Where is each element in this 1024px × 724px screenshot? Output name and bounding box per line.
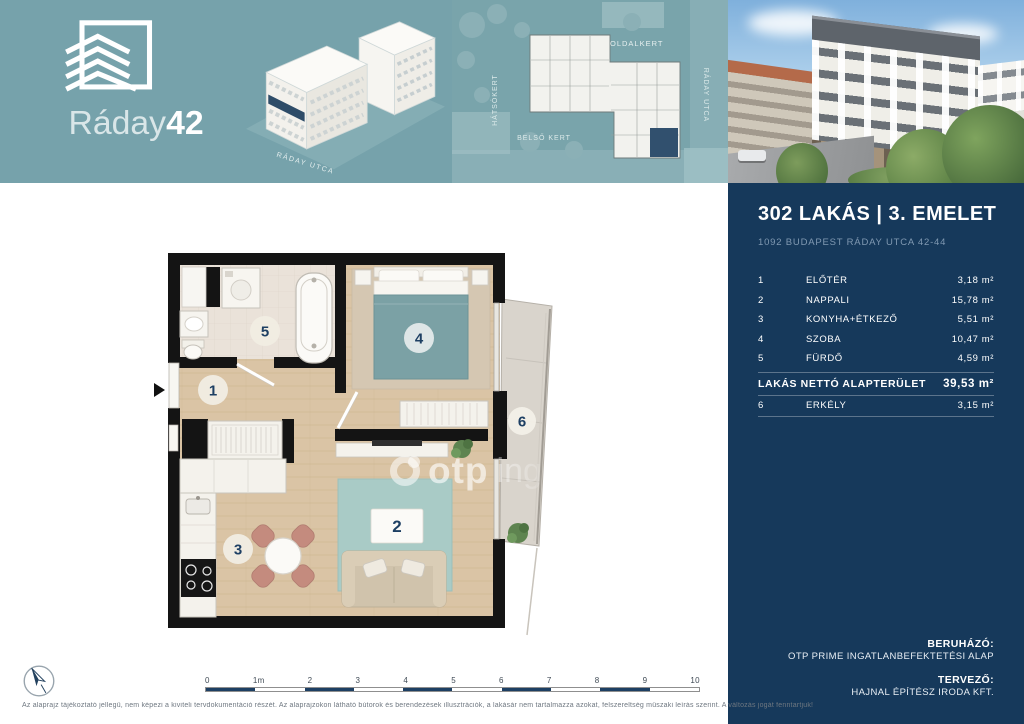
scale-tick: 3 (356, 676, 361, 685)
room-number: 1 (758, 275, 806, 286)
table-row: 4 SZOBA 10,47 m² (758, 330, 994, 350)
entrance-door (169, 363, 179, 408)
scale-track (205, 687, 700, 692)
scale-tick: 0 (205, 676, 210, 685)
tv (372, 440, 422, 446)
scale-tick: 8 (595, 676, 600, 685)
bathroom-niche (182, 267, 206, 307)
table-row: 1 ELŐTÉR 3,18 m² (758, 271, 994, 291)
nightstand (355, 270, 371, 285)
developer-label: BERUHÁZÓ: (788, 637, 994, 651)
room-badge-3: 3 (234, 542, 242, 559)
unit-info-sidebar: 302 LAKÁS | 3. EMELET 1092 BUDAPEST RÁDA… (728, 183, 1024, 724)
room-badge-5: 5 (261, 324, 269, 341)
unit-address: 1092 BUDAPEST RÁDAY UTCA 42-44 (758, 237, 946, 248)
balcony (500, 299, 552, 635)
room-area: 3,18 m² (958, 275, 994, 286)
table-row: 5 FÜRDŐ 4,59 m² (758, 349, 994, 369)
site-plan: OLDALKERT HÁTSÓKERT BELSŐ KERT RÁDAY UTC… (452, 0, 728, 183)
double-bed (374, 267, 468, 379)
room-badge-4: 4 (415, 331, 424, 348)
hall-wardrobe (208, 421, 282, 459)
unit-title: 302 LAKÁS | 3. EMELET (758, 203, 996, 226)
brand-logo: Ráday42 (28, 18, 208, 168)
siteplan-label-right: RÁDAY UTCA (702, 68, 711, 122)
table-row-balcony: 6 ERKÉLY 3,15 m² (758, 395, 994, 417)
room-number: 2 (758, 295, 806, 306)
dining-table (265, 538, 301, 574)
floor-plan: 1 5 4 3 2 6 (150, 243, 570, 643)
highlighted-unit-siteplan (650, 128, 678, 157)
brand-name: Ráday42 (69, 104, 204, 142)
sideboard (400, 401, 488, 427)
building-photo (728, 0, 1024, 183)
room-area: 5,51 m² (958, 314, 994, 325)
room-number: 6 (758, 400, 806, 411)
entrance-arrow-icon (154, 383, 165, 397)
room-badge-2: 2 (392, 517, 401, 536)
siteplan-label-top: OLDALKERT (610, 39, 663, 48)
scale-labels: 0 1m 2 3 4 5 6 7 8 9 10 (205, 676, 700, 685)
siteplan-label-inner: BELSŐ KERT (517, 133, 571, 142)
room-number: 5 (758, 353, 806, 364)
room-area: 15,78 m² (952, 295, 994, 306)
brand-logo-icon: Ráday42 (28, 18, 208, 148)
room-area: 10,47 m² (952, 334, 994, 345)
room-name: ERKÉLY (806, 400, 958, 411)
scale-tick: 9 (643, 676, 648, 685)
kitchen-counter-top (180, 459, 286, 493)
stove (181, 559, 216, 597)
room-badge-1: 1 (209, 383, 217, 400)
room-name: NAPPALI (806, 295, 952, 306)
room-name: FÜRDŐ (806, 353, 958, 364)
room-number: 3 (758, 314, 806, 325)
room-badge-6: 6 (518, 414, 526, 431)
header-band: Ráday42 (0, 0, 728, 183)
developer-name: OTP PRIME INGATLANBEFEKTETÉSI ALAP (788, 651, 994, 664)
scale-tick: 4 (403, 676, 408, 685)
room-name: KONYHA+ÉTKEZŐ (806, 314, 958, 325)
compass-icon (20, 662, 58, 700)
brochure-page: Ráday42 (0, 0, 1024, 724)
room-name: SZOBA (806, 334, 952, 345)
architect-name: HAJNAL ÉPÍTÉSZ IRODA KFT. (788, 687, 994, 700)
scale-tick: 7 (547, 676, 552, 685)
room-number: 4 (758, 334, 806, 345)
disclaimer-text: Az alaprajz tájékoztató jellegű, nem kép… (22, 702, 1012, 709)
scale-tick: 6 (499, 676, 504, 685)
scale-tick: 1m (253, 676, 265, 685)
architect-label: TERVEZŐ: (788, 673, 994, 687)
credits: BERUHÁZÓ: OTP PRIME INGATLANBEFEKTETÉSI … (788, 637, 994, 700)
nightstand (472, 270, 488, 285)
kitchen-sink (186, 499, 210, 514)
room-table: 1 ELŐTÉR 3,18 m² 2 NAPPALI 15,78 m² 3 KO… (758, 271, 994, 417)
room-name: ELŐTÉR (806, 275, 958, 286)
scale-tick: 2 (308, 676, 313, 685)
total-row: LAKÁS NETTÓ ALAPTERÜLET 39,53 m² (758, 372, 994, 395)
car (738, 150, 766, 161)
window (169, 425, 178, 451)
scale-tick: 5 (451, 676, 456, 685)
total-label: LAKÁS NETTÓ ALAPTERÜLET (758, 378, 943, 390)
room-area: 3,15 m² (958, 400, 994, 411)
room-area: 4,59 m² (958, 353, 994, 364)
scale-bar: 0 1m 2 3 4 5 6 7 8 9 10 (205, 676, 700, 692)
scale-tick: 10 (690, 676, 700, 685)
table-row: 3 KONYHA+ÉTKEZŐ 5,51 m² (758, 310, 994, 330)
axonometric-building: RÁDAY UTCA (238, 8, 450, 178)
siteplan-label-left: HÁTSÓKERT (490, 74, 499, 126)
table-row: 2 NAPPALI 15,78 m² (758, 291, 994, 311)
total-area: 39,53 m² (943, 378, 994, 390)
